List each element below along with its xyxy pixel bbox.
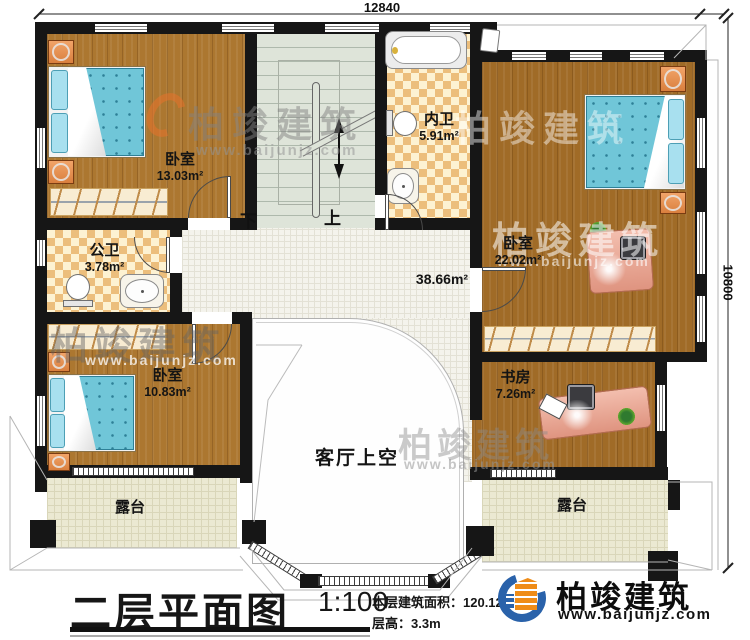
window	[512, 52, 546, 60]
room-name: 客厅上空	[262, 448, 452, 469]
room-name: 露台	[532, 498, 612, 515]
nightstand	[48, 352, 70, 372]
room-name: 卧室	[135, 152, 225, 169]
window	[325, 24, 379, 32]
room-area: 5.91m²	[398, 129, 480, 143]
room-name: 公卫	[62, 243, 147, 260]
window	[697, 118, 705, 168]
window	[697, 212, 705, 274]
pillow	[50, 378, 65, 412]
terrace-column	[30, 520, 56, 548]
toilet-tank	[386, 110, 393, 136]
wall	[245, 33, 257, 230]
plant-icon	[618, 408, 635, 425]
door-opening	[188, 218, 230, 230]
terrace-door-window	[72, 467, 194, 476]
stairs-down-label: 下	[240, 207, 257, 232]
nightstand	[48, 40, 74, 64]
brand-logo-building-icon	[515, 578, 537, 610]
door-leaf	[166, 237, 170, 273]
wall	[470, 33, 482, 363]
wall	[668, 480, 680, 510]
floor-plan-page: 卧室 13.03m² 公卫 3.78m² 内卫 5.91m² 卧室 22.02m…	[0, 0, 750, 640]
nightstand	[660, 66, 686, 92]
door-opening	[170, 237, 182, 273]
window	[95, 24, 147, 32]
room-label-inner-bath: 内卫 5.91m²	[398, 112, 480, 143]
room-label-bedroom-top-left: 卧室 13.03m²	[135, 152, 225, 183]
pillow	[668, 143, 684, 184]
room-label-bedroom-bottom-left: 卧室 10.83m²	[120, 368, 215, 399]
pillow	[51, 70, 68, 110]
living-room-void	[252, 318, 464, 564]
room-area: 7.26m²	[468, 387, 563, 401]
door-leaf	[482, 267, 526, 271]
wall	[35, 312, 182, 324]
title-underline-thin	[70, 635, 370, 637]
floor-area-text: 本层建筑面积：120.12m²	[372, 592, 519, 611]
window	[630, 52, 664, 60]
window	[222, 24, 274, 32]
dimension-top: 12840	[350, 0, 414, 15]
terrace-right-floor	[482, 480, 668, 562]
room-label-study: 书房 7.26m²	[468, 370, 563, 401]
window	[37, 128, 45, 168]
toilet-icon	[66, 274, 90, 300]
door-leaf	[385, 194, 389, 230]
flue	[480, 28, 501, 53]
bathtub-icon	[385, 31, 467, 69]
window	[657, 385, 665, 431]
brand-website: www.baijunjz.com	[558, 606, 711, 623]
window	[697, 296, 705, 342]
room-label-hall-area: 38.66m²	[392, 272, 492, 288]
room-area: 3.78m²	[62, 260, 147, 274]
room-label-living-void: 客厅上空	[262, 448, 452, 469]
brand-logo-building-icon	[506, 594, 514, 608]
floor-height-text: 层高：3.3m	[372, 613, 441, 632]
room-name: 内卫	[398, 112, 480, 129]
desk-lamp-glow	[592, 252, 626, 286]
wall	[240, 318, 252, 483]
nightstand	[48, 453, 70, 471]
bay-corner-column	[466, 526, 494, 556]
window	[570, 52, 602, 60]
room-area: 10.83m²	[120, 385, 215, 399]
door-leaf	[227, 176, 231, 218]
nightstand	[660, 192, 686, 214]
sink-icon	[120, 274, 164, 308]
dimension-right: 10800	[721, 253, 736, 313]
room-name: 卧室	[468, 236, 568, 253]
pillow	[668, 99, 684, 140]
stairs-up-label: 上	[324, 204, 341, 229]
terrace-window	[490, 469, 556, 478]
title-underline	[70, 627, 370, 632]
door-leaf	[192, 324, 196, 364]
nightstand	[48, 160, 74, 184]
door-opening	[192, 312, 232, 324]
room-label-terrace-left: 露台	[90, 500, 170, 517]
room-label-terrace-right: 露台	[532, 498, 612, 515]
toilet-tank	[63, 300, 93, 307]
room-label-bedroom-right: 卧室 22.02m²	[468, 236, 568, 267]
room-label-public-bath: 公卫 3.78m²	[62, 243, 147, 274]
room-name: 书房	[468, 370, 563, 387]
pillow	[50, 414, 65, 448]
wardrobe	[50, 188, 168, 216]
room-name: 卧室	[120, 368, 215, 385]
room-area: 22.02m²	[468, 253, 568, 267]
bay-corner-column	[242, 520, 266, 544]
room-area: 38.66m²	[392, 272, 492, 288]
room-area: 13.03m²	[135, 169, 225, 183]
wardrobe	[48, 324, 166, 350]
wall	[470, 352, 707, 362]
bay-window	[318, 576, 430, 586]
pillow	[51, 113, 68, 153]
stair-flight-outline	[278, 60, 340, 205]
window	[37, 396, 45, 446]
window	[37, 240, 45, 266]
room-name: 露台	[90, 500, 170, 517]
wardrobe	[484, 326, 656, 352]
